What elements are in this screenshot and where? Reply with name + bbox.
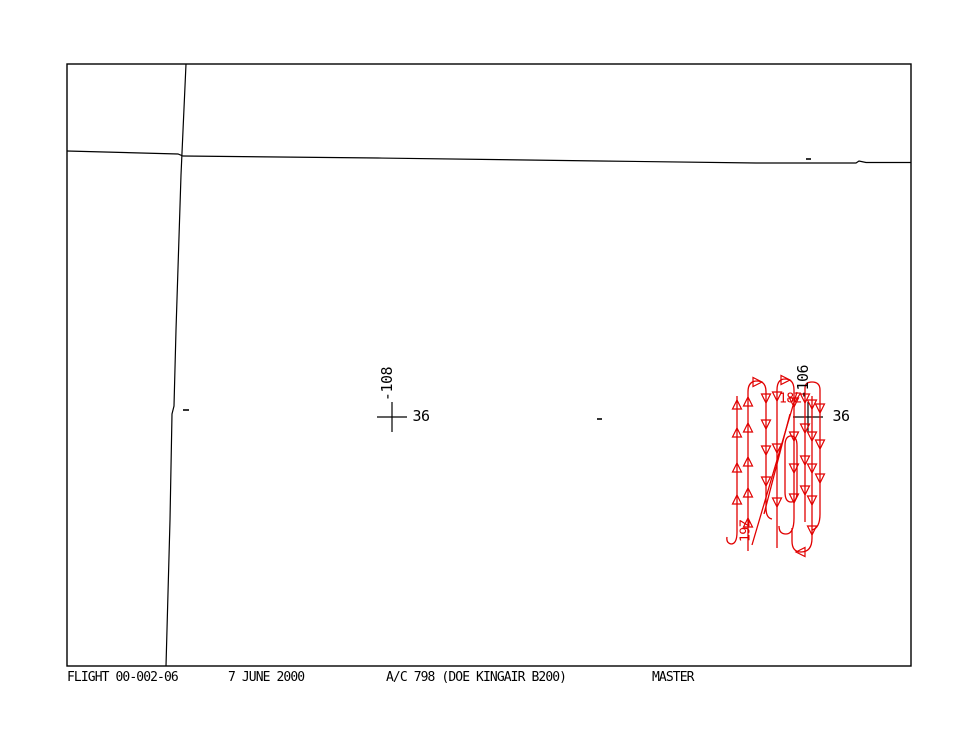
status-aircraft: A/C 798 (DOE KINGAIR B200) — [386, 670, 566, 685]
flight-track-path — [785, 436, 797, 502]
flight-track-path — [727, 396, 737, 544]
flight-track-display: -10836-1063618Z19Z FLIGHT 00-002-06 7 JU… — [0, 0, 976, 754]
map-frame — [67, 64, 911, 666]
status-mode: MASTER — [652, 670, 694, 685]
status-date: 7 JUNE 2000 — [228, 670, 304, 685]
state-boundary-line — [67, 151, 911, 163]
map-svg — [0, 0, 976, 754]
status-flight-number: FLIGHT 00-002-06 — [67, 670, 178, 685]
